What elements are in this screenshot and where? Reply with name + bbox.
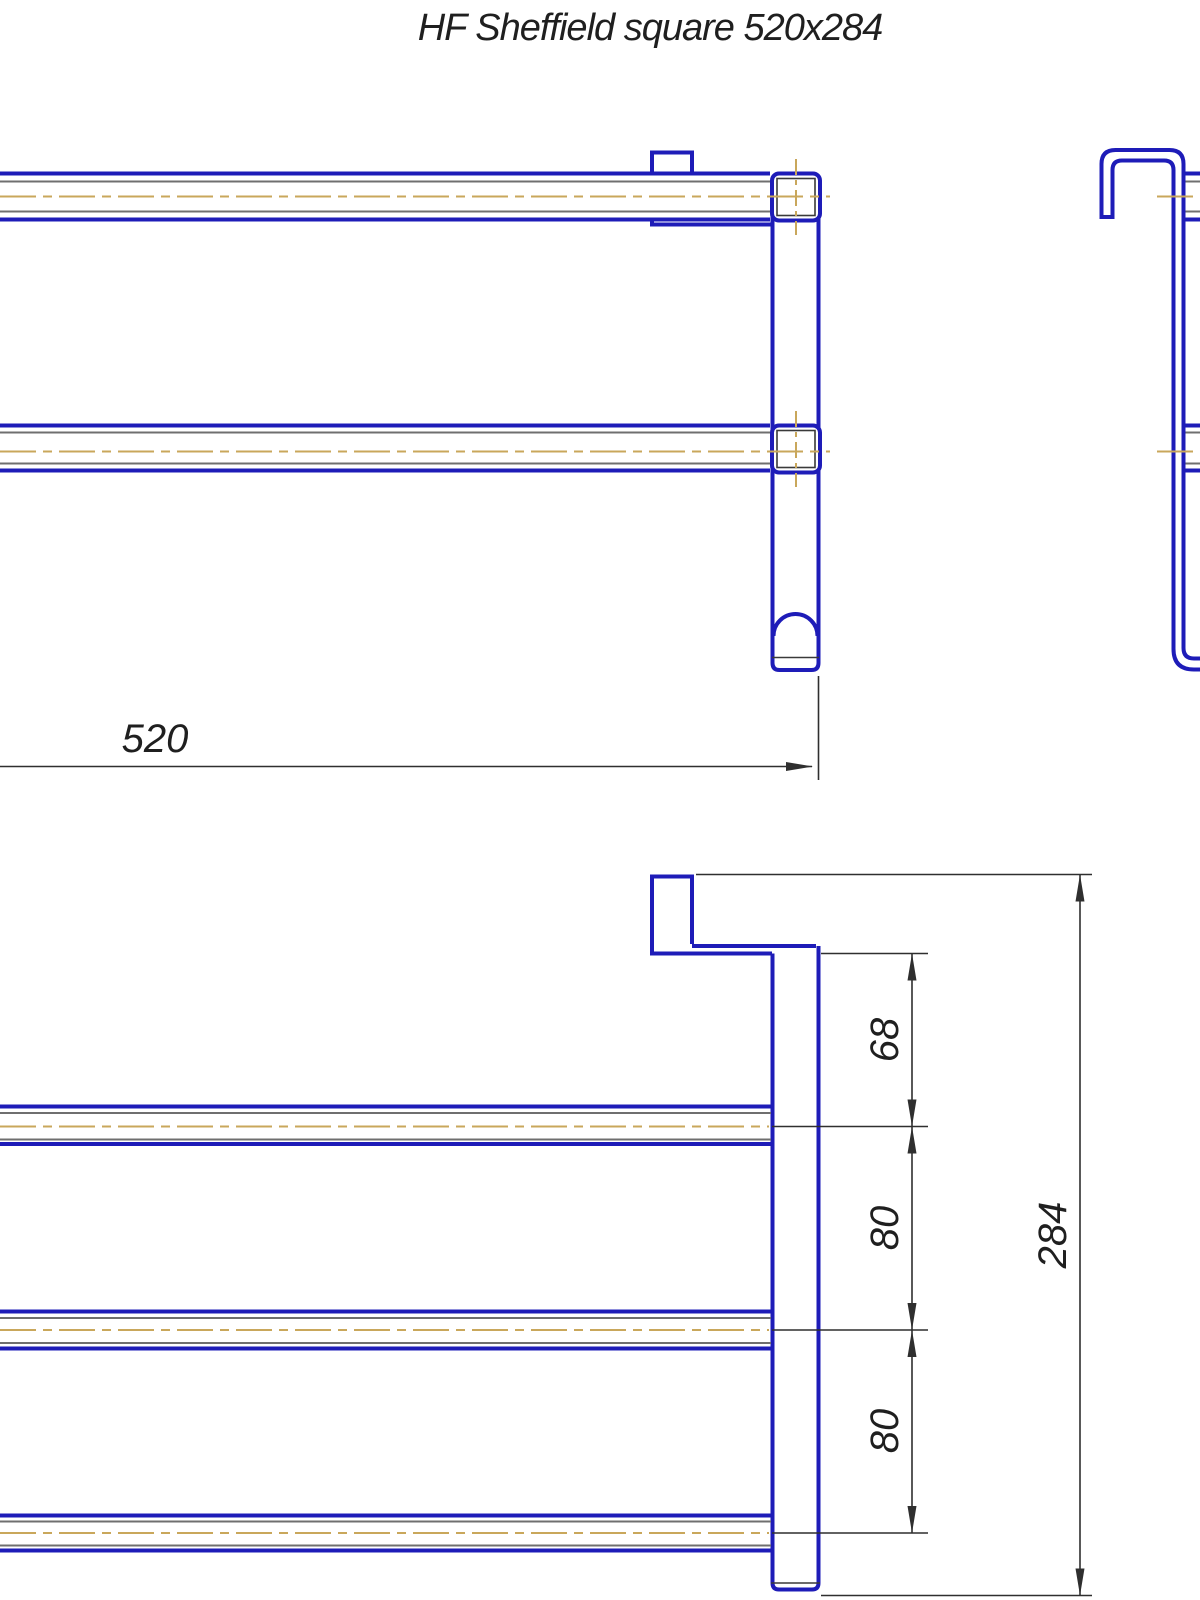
arrowhead-right — [786, 762, 813, 771]
arrowhead-down — [908, 1506, 917, 1533]
spacing-dimension-label-80a: 80 — [863, 1206, 907, 1251]
rail-3 — [0, 1516, 771, 1551]
spacing-dimension-label-68: 68 — [863, 1017, 907, 1062]
side-view — [1100, 150, 1200, 670]
arrowhead-up — [908, 954, 917, 981]
mounting-bracket — [650, 877, 816, 954]
height-dimension-label: 284 — [1031, 1202, 1075, 1270]
lower-rail — [0, 426, 830, 471]
arrowhead-up — [908, 1330, 917, 1357]
elevation-view: 68 80 80 284 — [0, 875, 1092, 1596]
mounting-bracket — [652, 153, 772, 225]
post-outline — [773, 946, 819, 1590]
hook-inner-contour — [1113, 161, 1200, 670]
arrowhead-up — [908, 1127, 917, 1154]
side-post — [771, 946, 820, 1590]
top-rail — [0, 174, 830, 220]
bracket-tab-outline — [652, 877, 692, 954]
arrowhead-down — [908, 1303, 917, 1330]
arrowhead-down — [1076, 1569, 1085, 1596]
width-dimension-label: 520 — [122, 717, 189, 761]
arrowhead-up — [1076, 875, 1085, 902]
height-dimension: 284 — [1031, 875, 1085, 1596]
hook-bracket-profile — [1100, 150, 1200, 670]
drawing-title: HF Sheffield square 520x284 — [418, 7, 883, 49]
spacing-dimensions: 68 80 80 — [863, 954, 917, 1534]
front-view: 520 — [0, 153, 830, 781]
width-dimension: 520 — [0, 676, 819, 780]
hook-outer-contour — [1102, 150, 1200, 659]
rail-stub-top — [1157, 174, 1200, 220]
rail-stub-bottom — [1157, 426, 1200, 471]
spacing-dimension-label-80b: 80 — [863, 1409, 907, 1454]
rail-2 — [0, 1312, 771, 1349]
drawing-title-block: HF Sheffield square 520x284 — [418, 7, 883, 49]
arrowhead-down — [908, 1100, 917, 1127]
rail-1 — [0, 1107, 771, 1145]
cad-sheet: HF Sheffield square 520x284 — [0, 0, 1200, 1600]
